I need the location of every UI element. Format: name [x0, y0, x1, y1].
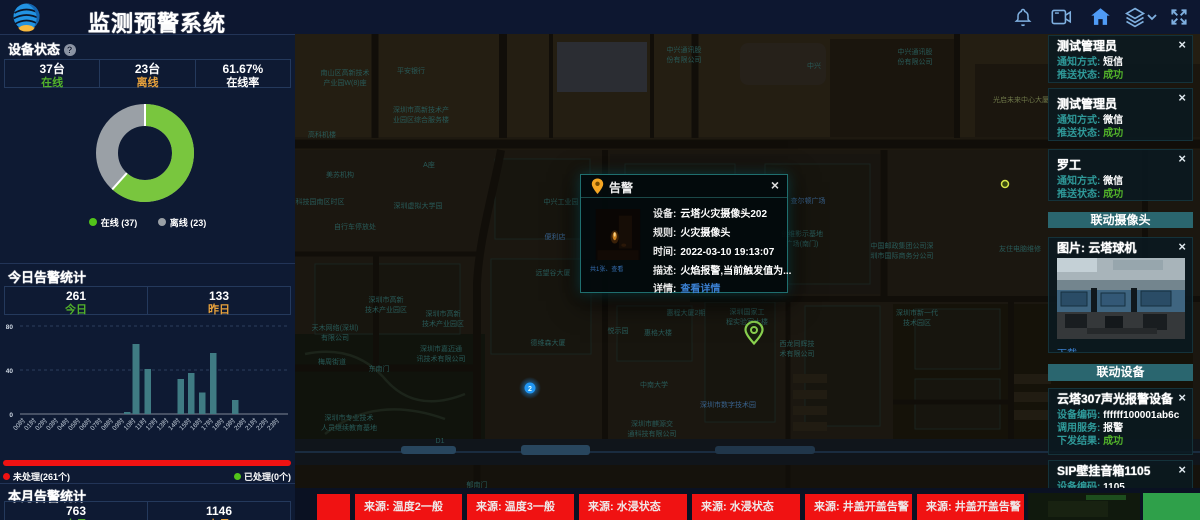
- svg-text:通科技有限公司: 通科技有限公司: [628, 429, 677, 438]
- svg-text:查尔顿广场: 查尔顿广场: [791, 196, 826, 205]
- svg-text:高科机楼: 高科机楼: [308, 130, 336, 139]
- svg-text:天木网络(深圳): 天木网络(深圳): [312, 323, 359, 332]
- svg-text:科技园南区时区: 科技园南区时区: [296, 197, 345, 206]
- svg-text:美苏机构: 美苏机构: [326, 170, 354, 179]
- svg-text:A座: A座: [423, 160, 435, 169]
- svg-text:惠程大厦2期: 惠程大厦2期: [667, 308, 706, 317]
- svg-text:中兴通讯股: 中兴通讯股: [667, 45, 702, 54]
- svg-text:广场(南门): 广场(南门): [786, 239, 819, 248]
- svg-text:郁南门: 郁南门: [467, 480, 488, 488]
- svg-text:0: 0: [9, 412, 13, 419]
- svg-text:远望谷大厦: 远望谷大厦: [536, 268, 571, 277]
- svg-text:南山区高新技术: 南山区高新技术: [321, 68, 370, 77]
- svg-text:深圳国家工: 深圳国家工: [730, 307, 765, 316]
- svg-text:深圳市高新技术产: 深圳市高新技术产: [393, 105, 449, 114]
- svg-text:份有限公司: 份有限公司: [898, 57, 933, 66]
- svg-text:自行车停放处: 自行车停放处: [334, 222, 376, 231]
- svg-text:80: 80: [6, 324, 14, 331]
- svg-text:深圳市新一代: 深圳市新一代: [896, 308, 938, 317]
- svg-text:技术园区: 技术园区: [903, 318, 931, 327]
- svg-text:份有限公司: 份有限公司: [667, 55, 702, 64]
- svg-text:深圳市高新: 深圳市高新: [369, 295, 404, 304]
- svg-text:中国邮政集团公司深: 中国邮政集团公司深: [871, 241, 934, 250]
- svg-text:梅周街道: 梅周街道: [318, 357, 346, 366]
- svg-text:40: 40: [6, 368, 14, 375]
- svg-text:德维森大厦: 德维森大厦: [531, 338, 566, 347]
- svg-text:友住电脑维修: 友住电脑维修: [999, 244, 1041, 253]
- svg-text:平安银行: 平安银行: [397, 66, 425, 75]
- svg-text:2: 2: [528, 386, 532, 393]
- svg-text:技术产业园区: 技术产业园区: [422, 319, 464, 328]
- svg-text:深圳市高新: 深圳市高新: [426, 309, 461, 318]
- svg-text:中兴工业园: 中兴工业园: [544, 197, 579, 206]
- svg-text:业园区综合服务楼: 业园区综合服务楼: [393, 115, 449, 124]
- svg-text:中兴通讯股: 中兴通讯股: [898, 47, 933, 56]
- svg-text:深圳市麒源交: 深圳市麒源交: [631, 419, 673, 428]
- svg-text:术有限公司: 术有限公司: [780, 349, 815, 358]
- svg-text:中南大学: 中南大学: [640, 380, 668, 389]
- svg-text:东南门: 东南门: [369, 364, 390, 373]
- svg-text:人员继续教育基地: 人员继续教育基地: [321, 423, 377, 432]
- svg-text:光启未来中心大厦: 光启未来中心大厦: [993, 95, 1049, 104]
- svg-text:深圳市嘉迈通: 深圳市嘉迈通: [420, 344, 462, 353]
- svg-text:深圳虚拟大学园: 深圳虚拟大学园: [394, 201, 443, 210]
- svg-text:中兴: 中兴: [807, 61, 821, 70]
- svg-text:圳市国际商务分公司: 圳市国际商务分公司: [871, 251, 934, 260]
- svg-text:讯技术有限公司: 讯技术有限公司: [417, 354, 466, 363]
- svg-text:便利店: 便利店: [545, 232, 566, 241]
- svg-text:悦示园: 悦示园: [608, 326, 629, 335]
- svg-text:产业园W(8)座: 产业园W(8)座: [323, 78, 366, 87]
- svg-text:深圳市数字技术园: 深圳市数字技术园: [700, 400, 756, 409]
- svg-text:西龙同辉技: 西龙同辉技: [780, 339, 815, 348]
- svg-text:惠格大楼: 惠格大楼: [644, 328, 672, 337]
- svg-text:深圳市专业技术: 深圳市专业技术: [325, 413, 374, 422]
- svg-text:有限公司: 有限公司: [321, 333, 349, 342]
- svg-text:D1: D1: [436, 438, 445, 445]
- svg-text:技术产业园区: 技术产业园区: [365, 305, 407, 314]
